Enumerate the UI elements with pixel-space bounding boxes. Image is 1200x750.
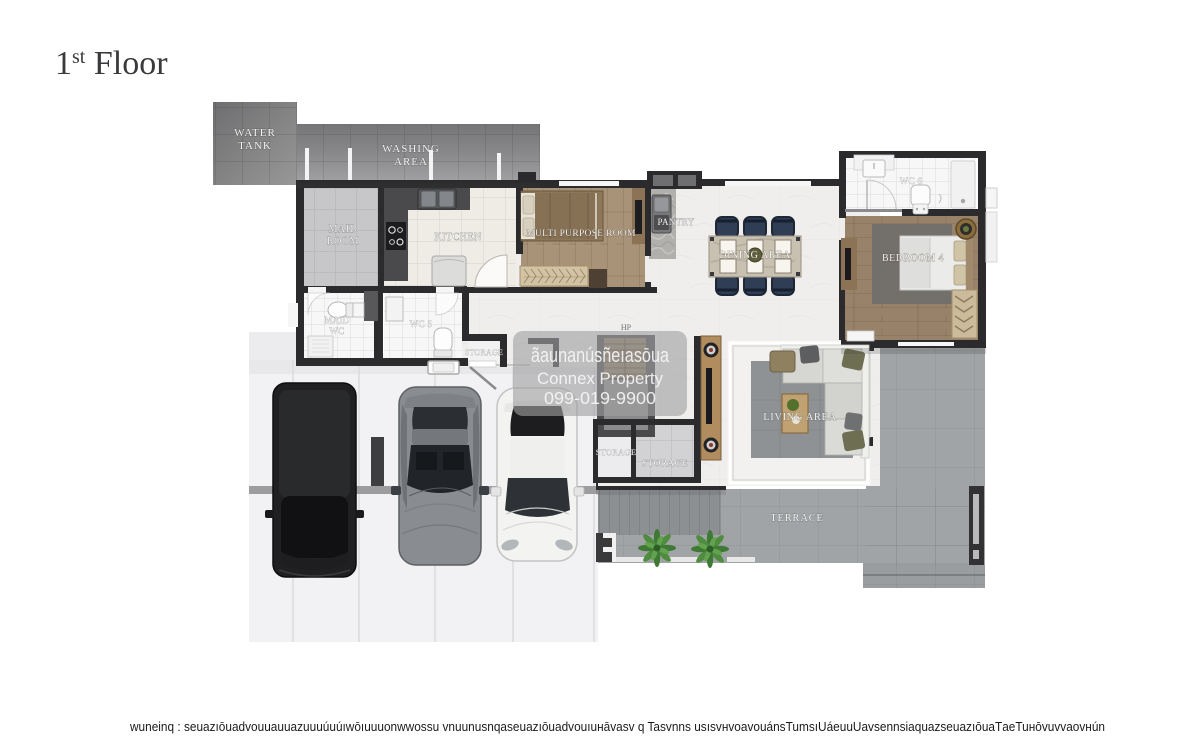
svg-text:AREA: AREA	[394, 156, 428, 168]
svg-text:WC: WC	[329, 326, 344, 336]
svg-text:WC 6: WC 6	[900, 176, 923, 186]
svg-text:MULTI PURPOSE ROOM: MULTI PURPOSE ROOM	[526, 229, 636, 239]
svg-text:Connex Property: Connex Property	[537, 369, 663, 388]
svg-text:1st Floor: 1st Floor	[55, 45, 168, 82]
svg-text:DINING AREA: DINING AREA	[719, 250, 790, 261]
svg-text:ROOM: ROOM	[327, 236, 359, 247]
svg-text:LIVING AREA: LIVING AREA	[763, 412, 836, 423]
svg-text:TANK: TANK	[238, 140, 272, 152]
svg-text:STORAGE: STORAGE	[596, 447, 636, 457]
svg-text:WATER: WATER	[234, 127, 276, 139]
svg-text:BEDROOM 4: BEDROOM 4	[882, 253, 944, 264]
svg-text:HP: HP	[621, 323, 632, 332]
svg-text:WC 5: WC 5	[410, 319, 433, 329]
svg-text:STORAGE: STORAGE	[465, 348, 503, 357]
svg-text:STORAGE: STORAGE	[642, 459, 688, 469]
svg-text:TERRACE: TERRACE	[770, 513, 823, 524]
svg-text:wuneinq : seuazıōuadvouuauuazu: wuneinq : seuazıōuadvouuauuazuuuúuúıwōıu…	[129, 719, 1105, 734]
svg-text:099-019-9900: 099-019-9900	[544, 388, 656, 408]
svg-text:MAID: MAID	[324, 315, 350, 325]
svg-text:ãaunanúsñeıasōua: ãaunanúsñeıasōua	[531, 345, 670, 367]
svg-text:KITCHEN: KITCHEN	[434, 232, 481, 243]
svg-text:MAID: MAID	[329, 224, 358, 235]
svg-text:PANTRY: PANTRY	[657, 217, 694, 227]
